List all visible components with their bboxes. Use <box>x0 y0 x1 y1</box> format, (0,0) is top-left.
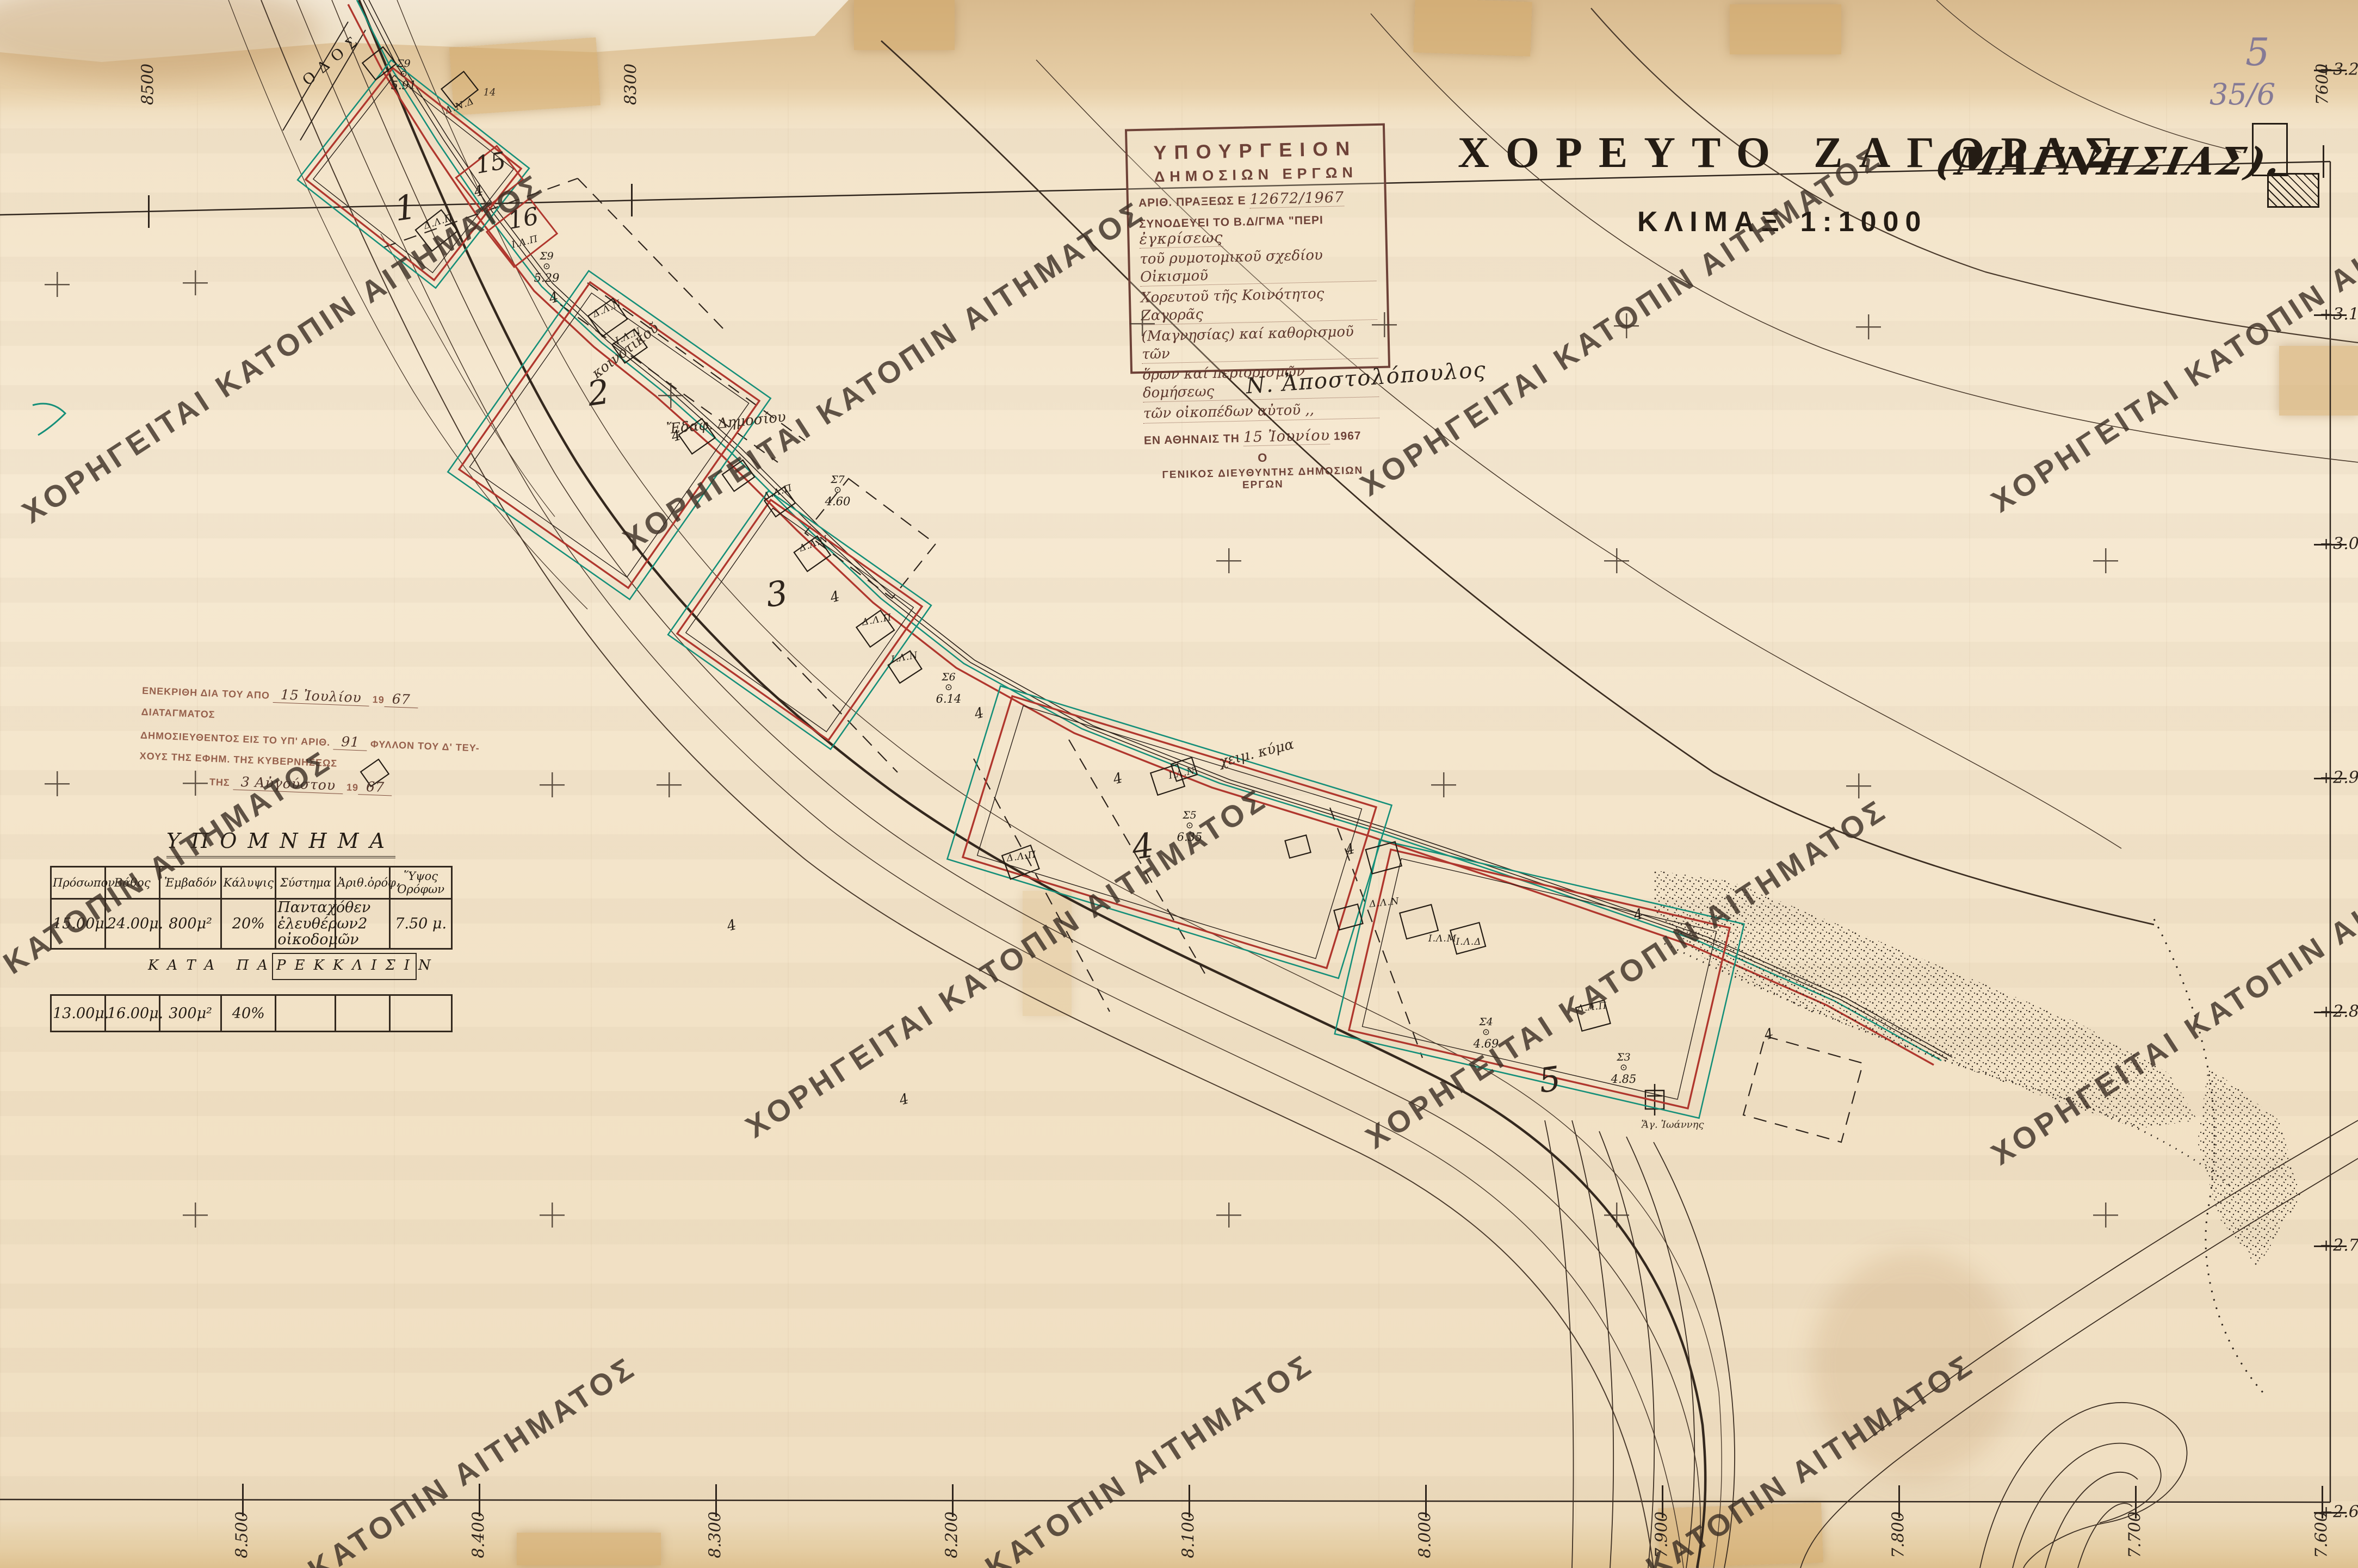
grid-cross <box>1856 314 1881 339</box>
pencil-reference: 35/6 <box>2210 77 2275 111</box>
legend-cell: 300μ² <box>159 995 221 1032</box>
legend-header: Ἀριθ.ὀρόφ. <box>336 867 390 899</box>
grid-coordinate-bottom: 8.000 <box>1416 1511 1435 1558</box>
benchmark-label: Σ7⊙4.60 <box>825 475 851 507</box>
grid-cross <box>1130 311 1155 336</box>
ministry-stamp: ΥΠΟΥΡΓΕΙΟΝ ΔΗΜΟΣΙΩΝ ΕΡΓΩΝ ΑΡΙΘ. ΠΡΑΞΕΩΣ … <box>1125 123 1390 374</box>
map-sheet: ΧΟΡΕΥΤΟ ΖΑΓΟΡΑΣ (ΜΑΓΝΗΣΙΑΣ). ΚΛΙΜΑΞ 1:10… <box>0 0 2358 1568</box>
benchmark-elevation: 5.91 <box>391 79 417 91</box>
stamp-act-line: ΑΡΙΘ. ΠΡΑΞΕΩΣ Ε 12672/1967 <box>1138 188 1375 210</box>
grid-cross <box>1431 772 1456 797</box>
grid-cross <box>2093 548 2118 573</box>
benchmark-elevation: 6.35 <box>1177 831 1203 843</box>
grid-coordinate-bottom: 8.400 <box>469 1511 488 1558</box>
map-annotation: 14 <box>484 87 496 98</box>
benchmark-label: Σ5⊙6.35 <box>1177 810 1203 843</box>
stamp-date-value: 15 Ἰουνίου <box>1243 427 1330 447</box>
grid-cross <box>658 383 683 408</box>
benchmark-icon: ⊙ <box>1482 1028 1490 1038</box>
grid-coordinate-bottom: 7.700 <box>2126 1511 2145 1558</box>
stamp-act-value: 12672/1967 <box>1249 189 1344 208</box>
contour-nest <box>1980 1403 2187 1568</box>
building-footprint <box>1285 835 1311 858</box>
grid-tick <box>2314 544 2347 546</box>
benchmark-icon: ⊙ <box>834 486 841 495</box>
grid-cross <box>1216 1203 1241 1228</box>
benchmark-name: Σ7 <box>831 475 845 486</box>
benchmark-icon: ⊙ <box>543 262 550 272</box>
benchmark-name: Σ5 <box>1183 810 1197 821</box>
building-footprint <box>1366 842 1402 874</box>
teal-scribble <box>33 404 65 435</box>
grid-tick <box>715 1484 717 1517</box>
pencil-sheet-number: 5 <box>2245 30 2270 75</box>
stamp-date-year: 1967 <box>1334 429 1361 442</box>
legend-cell: 7.50 μ. <box>390 899 452 949</box>
benchmark-elevation: 4.60 <box>825 495 851 507</box>
grid-coordinate-top: 8500 <box>139 64 158 105</box>
grid-coordinate-bottom: 8.500 <box>233 1511 252 1558</box>
benchmark-label: Σ9⊙5.29 <box>534 251 560 284</box>
grid-cross <box>183 1203 208 1228</box>
legend-cell: 40% <box>221 995 276 1032</box>
grid-tick <box>2314 1512 2347 1514</box>
grid-cross <box>183 771 208 796</box>
grid-tick <box>631 184 633 216</box>
benchmark-icon: ⊙ <box>945 683 952 693</box>
approval-text: ΕΝΕΚΡΙΘΗ ΔΙΑ ΤΟΥ ΑΠΟ <box>142 685 270 701</box>
grid-tick <box>1662 1485 1663 1518</box>
approval-year: 67 <box>384 691 418 708</box>
grid-tick <box>242 1484 244 1516</box>
grid-cross <box>657 772 682 797</box>
approval-gazette-number: 91 <box>333 733 368 751</box>
building-code-label: Ι.Λ.Δ <box>1456 937 1481 947</box>
grid-tick <box>1189 1485 1190 1517</box>
grid-coordinate-bottom: 7.800 <box>1889 1511 1908 1558</box>
benchmark-elevation: 4.69 <box>1474 1038 1499 1050</box>
grid-cross <box>2093 1203 2118 1228</box>
benchmark-elevation: 6.14 <box>936 693 962 705</box>
stamp-act-label: ΑΡΙΘ. ΠΡΑΞΕΩΣ Ε <box>1138 194 1246 209</box>
stamp-date-label: ΕΝ ΑΘΗΝΑΙΣ ΤΗ <box>1144 432 1240 447</box>
legend-cell: 13.00μ. <box>51 995 106 1032</box>
grid-tick <box>2323 145 2324 178</box>
approval-text: 19 <box>346 782 359 794</box>
benchmark-icon: ⊙ <box>1186 821 1193 831</box>
grid-cross <box>1614 313 1639 338</box>
grid-cross <box>1372 312 1397 337</box>
stamp-decree-line: ΣΥΝΟΔΕΥΕΙ ΤΟ Β.Δ/ΓΜΑ "ΠΕΡΙ ἐγκρίσεως <box>1139 213 1376 248</box>
grid-coordinate-bottom: 8.200 <box>943 1511 962 1558</box>
stamp-department: ΔΗΜΟΣΙΩΝ ΕΡΓΩΝ <box>1138 164 1375 186</box>
legend-cell: 800μ² <box>159 899 221 949</box>
grid-tick <box>2314 314 2347 316</box>
stamp-decree-label: ΣΥΝΟΔΕΥΕΙ ΤΟ Β.Δ/ΓΜΑ "ΠΕΡΙ <box>1139 214 1323 231</box>
approval-text: ΔΗΜΟΣΙΕΥΘΕΝΤΟΣ ΕΙΣ ΤΟ ΥΠ' ΑΡΙΘ. <box>140 729 331 747</box>
grid-tick <box>2314 1245 2347 1247</box>
grid-tick <box>1425 1485 1427 1517</box>
legend-cell: Πανταχόθεν ἐλευθέρων οἰκοδομῶν <box>276 899 336 949</box>
legend-data-row: 13.00μ. 16.00μ. 300μ² 40% <box>51 995 452 1032</box>
building-code-label: Ι.Λ.Μ <box>1428 933 1457 944</box>
legend-cell: 16.00μ. <box>105 995 159 1032</box>
approval-text: ΦΥΛΛΟΝ ΤΟΥ Δ' ΤΕΥ- <box>370 739 480 754</box>
stamp-decree-subject: ἐγκρίσεως <box>1139 229 1223 248</box>
legend-header: Σύστημα <box>276 867 336 899</box>
legend-cell <box>276 995 336 1032</box>
stamp-decree-text: (Μαγνησίας) καί καθορισμοῦ τῶν <box>1141 323 1378 364</box>
approval-text: 19 <box>372 694 385 705</box>
grid-tick <box>148 195 150 228</box>
approval-date: 15 Ἰουλίου <box>273 686 369 706</box>
page-title-region: (ΜΑΓΝΗΣΙΑΣ). <box>1932 139 2287 184</box>
grid-tick <box>2314 1012 2347 1013</box>
grid-tick <box>2314 778 2347 779</box>
benchmark-icon: ⊙ <box>1620 1063 1627 1073</box>
grid-coordinate-bottom: 8.100 <box>1179 1511 1198 1558</box>
grid-cross <box>540 1203 565 1228</box>
grid-tick <box>2135 1486 2137 1519</box>
benchmark-label: Σ3⊙4.85 <box>1611 1052 1637 1085</box>
benchmark-name: Σ4 <box>1479 1017 1493 1028</box>
approval-text: ΤΗΣ <box>209 777 231 788</box>
benchmark-elevation: 4.85 <box>1611 1073 1637 1085</box>
grid-tick <box>1898 1485 1900 1518</box>
approval-text: ΔΙΑΤΑΓΜΑΤΟΣ <box>141 706 215 720</box>
grid-cross <box>183 270 208 295</box>
grid-tick <box>479 1484 480 1516</box>
grid-cross <box>1604 548 1629 573</box>
beach-shingle <box>1654 870 2301 1267</box>
building-footprint <box>1334 904 1363 929</box>
grid-coordinate-top: 8300 <box>622 64 641 105</box>
benchmark-name: Σ9 <box>540 251 554 262</box>
legend-deviation-table: 13.00μ. 16.00μ. 300μ² 40% <box>50 994 453 1032</box>
benchmark-icon: ⊙ <box>400 70 407 79</box>
benchmark-label: Σ4⊙4.69 <box>1474 1017 1499 1050</box>
building-number: 16 <box>506 202 541 235</box>
approval-publication-year: 67 <box>358 779 393 796</box>
benchmark-name: Σ6 <box>942 672 956 683</box>
benchmark-elevation: 5.29 <box>534 272 560 284</box>
grid-coordinate-bottom: 7.900 <box>1653 1511 1672 1558</box>
legend-header: Ὕψος Ὀρόφων <box>390 867 452 899</box>
legend-cell <box>336 995 390 1032</box>
grid-cross <box>45 272 70 297</box>
benchmark-name: Σ3 <box>1617 1052 1631 1063</box>
map-annotation: Ἅγ. Ἰωάννης <box>1642 1119 1704 1131</box>
grid-cross <box>540 772 565 797</box>
stamp-decree-text: Χορευτοῦ τῆς Κοινότητος Ζαγορᾶς <box>1141 284 1377 325</box>
benchmark-label: Σ9⊙5.91 <box>391 59 417 91</box>
building-number: 15 <box>473 147 508 179</box>
grid-tick <box>2314 70 2347 71</box>
grid-tick <box>952 1484 954 1517</box>
legend-cell: 20% <box>221 899 276 949</box>
legend-header: Κάλυψις <box>221 867 276 899</box>
legend-deviation-box <box>272 953 417 980</box>
block-outline <box>948 686 1392 978</box>
grid-coordinate-bottom: 8.300 <box>706 1511 725 1558</box>
grid-cross <box>1604 1203 1629 1228</box>
grid-cross <box>1846 773 1871 798</box>
legend-cell <box>390 995 452 1032</box>
grid-cross <box>1216 548 1241 573</box>
benchmark-label: Σ6⊙6.14 <box>936 672 962 705</box>
stamp-ministry: ΥΠΟΥΡΓΕΙΟΝ <box>1137 137 1373 165</box>
benchmark-name: Σ9 <box>397 59 411 70</box>
stamp-decree-text: τοῦ ρυμοτομικοῦ σχεδίου Οἰκισμοῦ <box>1140 245 1376 287</box>
grid-cross <box>45 771 70 796</box>
